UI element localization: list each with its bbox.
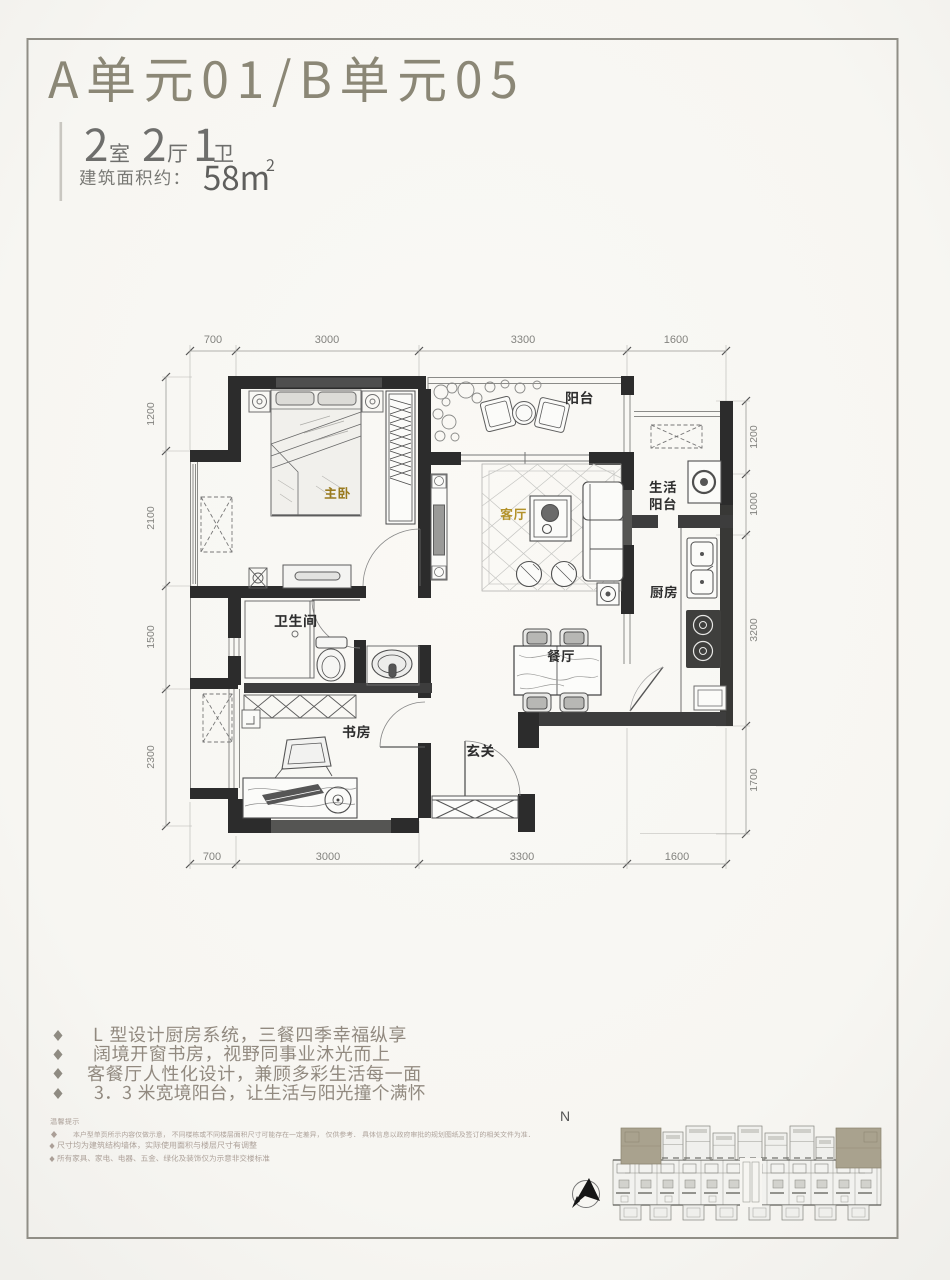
svg-text:1600: 1600 [665, 851, 689, 863]
svg-text:1600: 1600 [664, 334, 688, 346]
svg-text:700: 700 [203, 851, 221, 863]
svg-text:3000: 3000 [316, 851, 340, 863]
svg-text:1500: 1500 [145, 625, 157, 649]
svg-text:N: N [560, 1108, 570, 1124]
svg-text:1200: 1200 [748, 425, 760, 449]
svg-text:3200: 3200 [748, 618, 760, 642]
svg-text:1700: 1700 [748, 768, 760, 792]
svg-text:3000: 3000 [315, 334, 339, 346]
svg-text:1000: 1000 [748, 492, 760, 516]
svg-text:3300: 3300 [510, 851, 534, 863]
svg-text:3300: 3300 [511, 334, 535, 346]
svg-text:2100: 2100 [145, 506, 157, 530]
svg-text:700: 700 [204, 334, 222, 346]
svg-text:2300: 2300 [145, 745, 157, 769]
svg-text:1200: 1200 [145, 402, 157, 426]
